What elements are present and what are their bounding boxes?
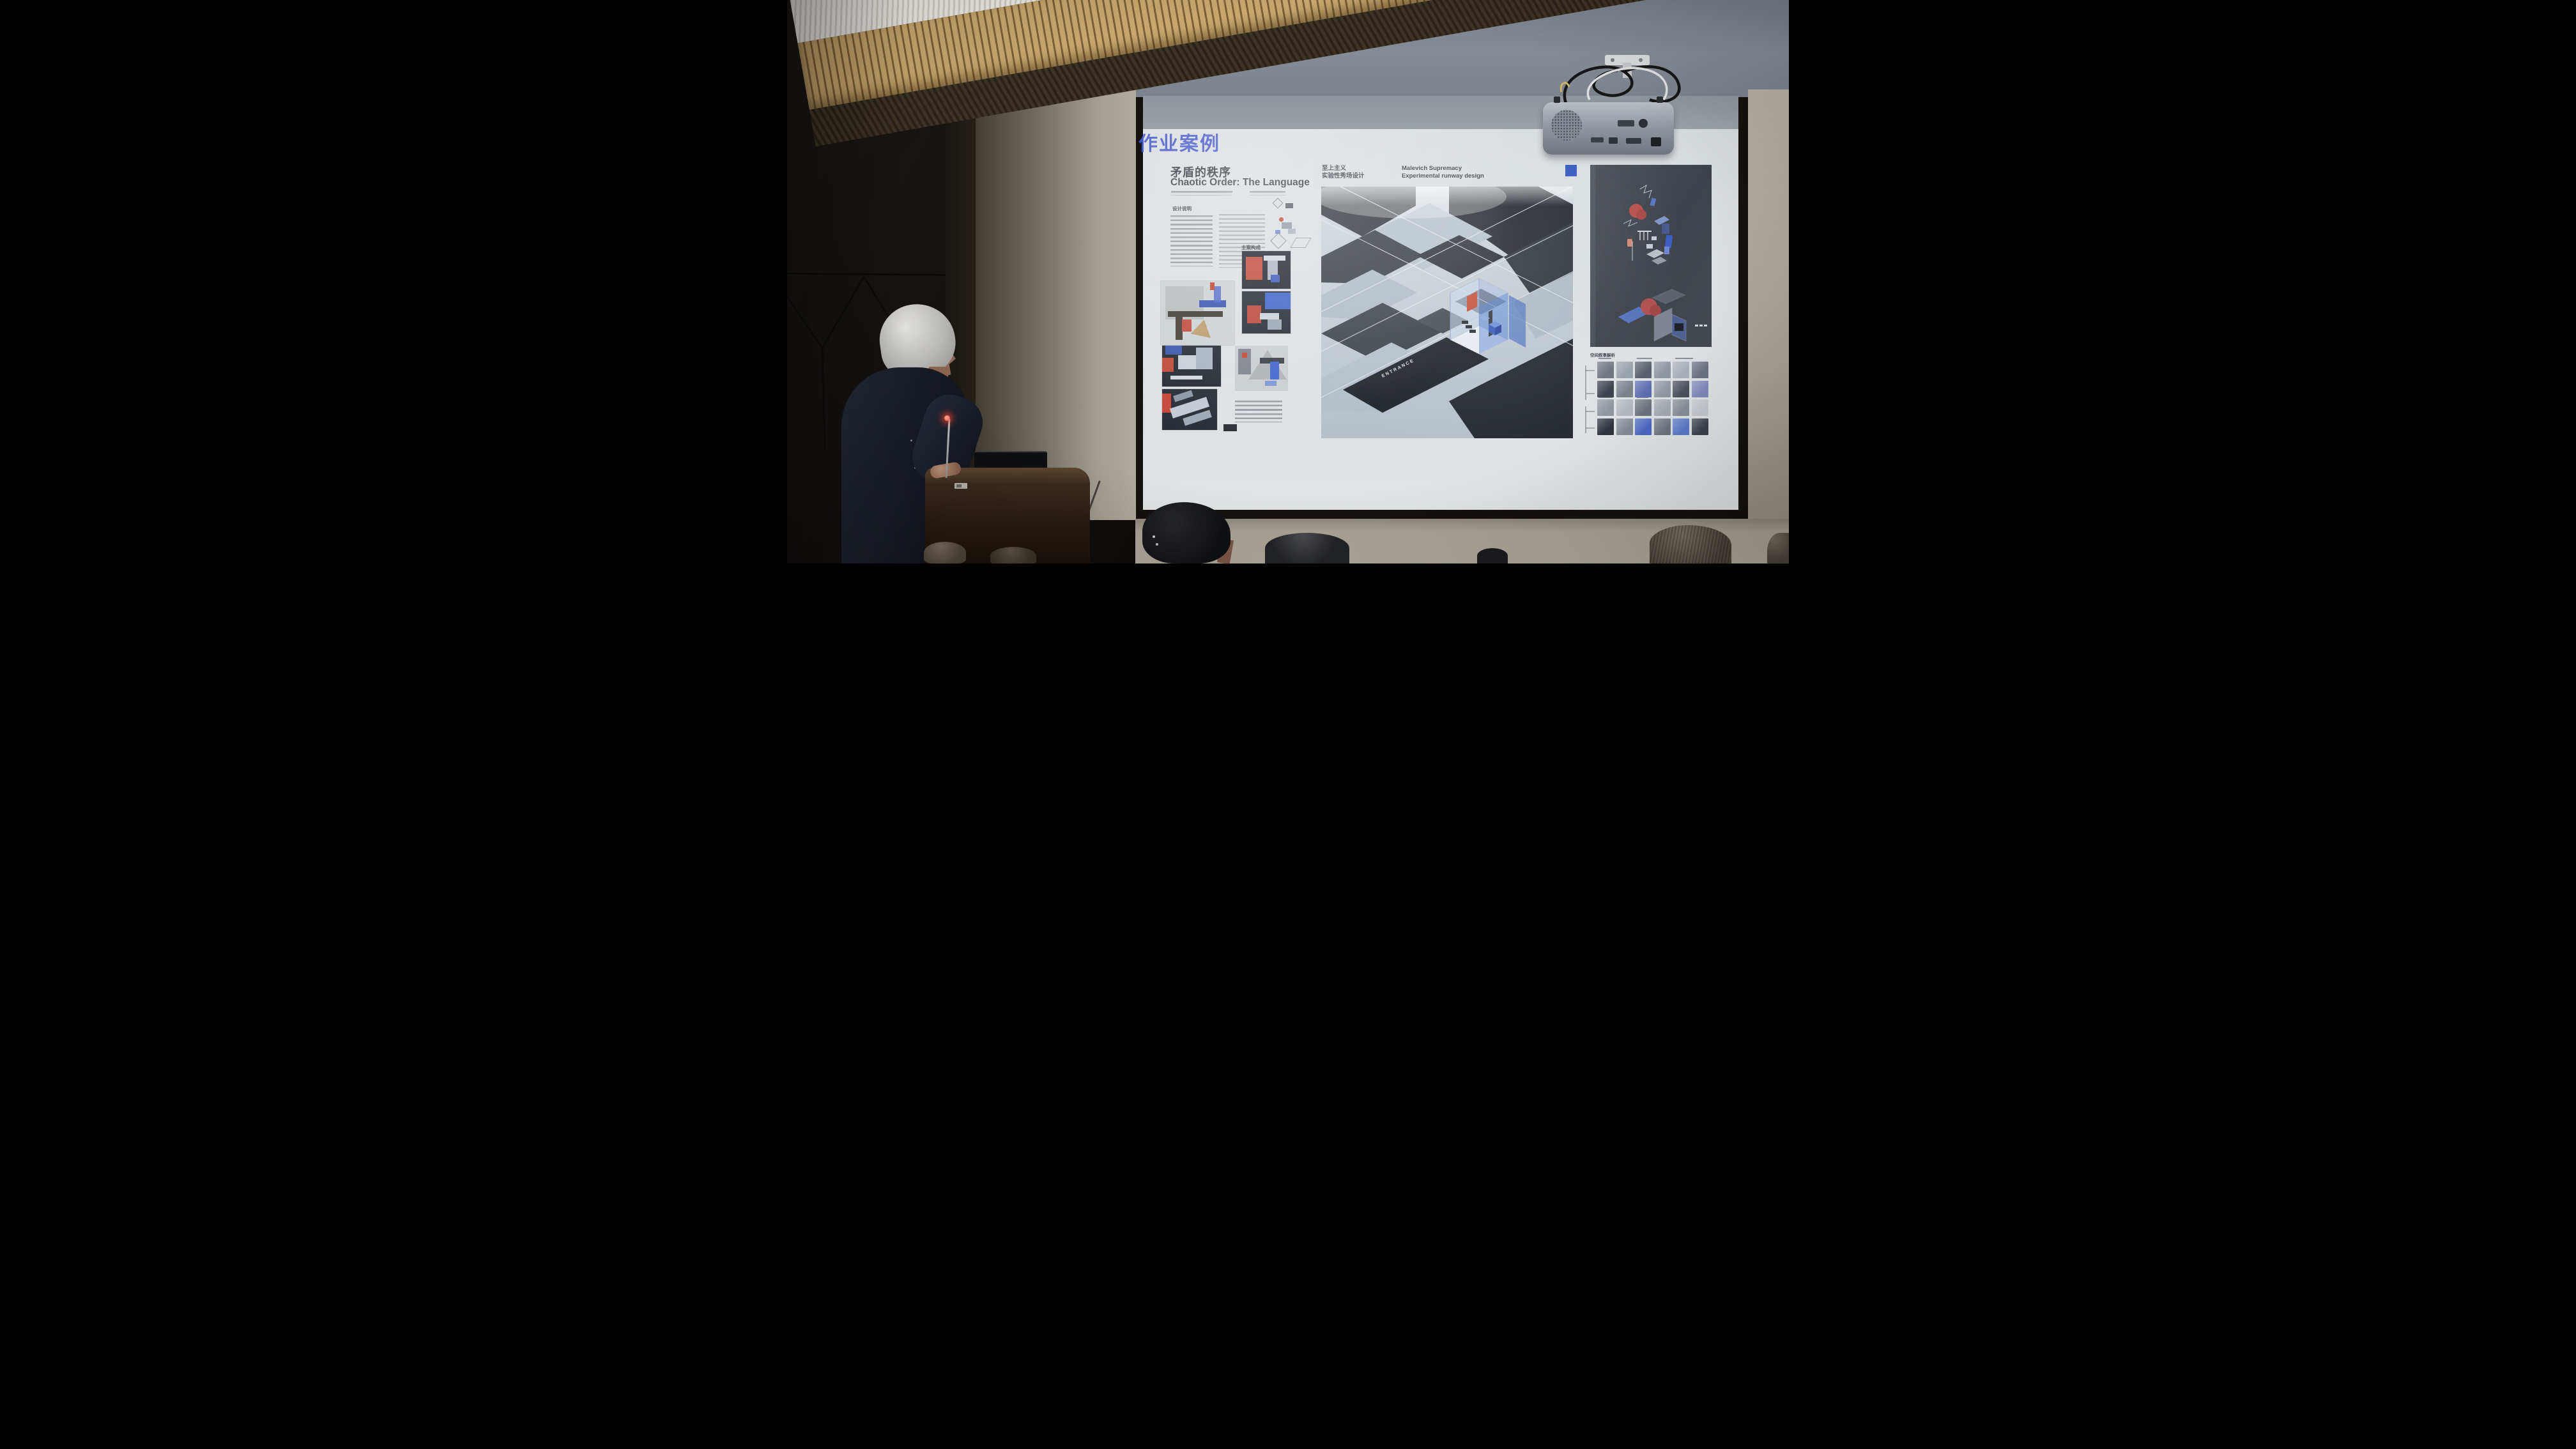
collage-shape: [1210, 282, 1215, 290]
collage-panel-2: [1242, 291, 1291, 333]
audience-head: [924, 542, 966, 563]
grid-column-label-blur: [1675, 358, 1693, 359]
analysis-thumbnail: [1597, 362, 1614, 378]
analysis-thumbnail: [1616, 381, 1633, 397]
beige-wall-right: [1748, 89, 1789, 563]
analysis-label: 空间叙事解析: [1590, 351, 1615, 358]
grid-column-label-blur: [1637, 358, 1652, 359]
analysis-thumbnail: [1673, 418, 1689, 435]
analysis-thumbnail: [1654, 362, 1671, 378]
diagram-shape: [1270, 233, 1286, 249]
analysis-thumbnail: [1654, 381, 1671, 397]
collage-shape: [1168, 311, 1223, 317]
collage-panel-5: [1162, 389, 1217, 430]
collage-shape: [1247, 305, 1261, 323]
projector-vga-port: [1618, 120, 1634, 126]
projector-speaker-grille: [1551, 110, 1582, 141]
analysis-thumbnail: [1654, 399, 1671, 416]
collage-panel-3: [1161, 281, 1234, 345]
diagram-shape: [1282, 222, 1292, 229]
diagram-shape: [1279, 217, 1284, 222]
credits-designer-blur: [1171, 191, 1232, 195]
project-title-en: Chaotic Order: The Language: [1170, 177, 1310, 188]
projector-cables: [1528, 55, 1694, 109]
projector-slot: [1591, 137, 1604, 142]
collage-shape: [1268, 319, 1282, 330]
collage-shape: [1170, 376, 1202, 379]
microphone-light: [944, 415, 950, 421]
analysis-thumbnail: [1635, 381, 1652, 397]
cap-logo-dot: [1156, 543, 1158, 546]
design-notes-label: 设计说明: [1172, 205, 1192, 212]
audience-head: [990, 547, 1036, 563]
analysis-thumbnail: [1597, 381, 1614, 397]
diagram-shape: [1290, 238, 1311, 248]
podium-plaque-mark: [956, 484, 962, 487]
collage-shape: [1196, 348, 1213, 369]
collage-shape: [1199, 300, 1226, 307]
analysis-thumbnail: [1692, 399, 1708, 416]
analysis-thumbnail: [1635, 399, 1652, 416]
hair-texture: [1650, 525, 1731, 563]
collage-shape: [1173, 390, 1193, 402]
runway-subtitle-en: Malevich Supremacy Experimental runway d…: [1402, 165, 1484, 180]
projector-round-port: [1639, 119, 1648, 128]
collage-shape: [1165, 346, 1182, 355]
audience-head: [1477, 548, 1508, 563]
collage-shape: [1191, 318, 1215, 338]
analysis-thumbnail-grid: [1597, 362, 1708, 435]
projector-hdmi-port: [1626, 138, 1641, 144]
analysis-thumbnail: [1692, 362, 1708, 378]
collage-shape: [1162, 358, 1174, 372]
collage-shape: [1242, 353, 1247, 358]
runway-subtitle-zh-line2: 实验性秀场设计: [1322, 172, 1365, 180]
collage-shape: [1260, 313, 1279, 319]
analysis-tree-diagram: [1581, 362, 1596, 438]
projector: [1543, 102, 1674, 155]
slide-section-title: 作业案例: [1138, 128, 1220, 156]
collage-panel-4: [1162, 346, 1221, 387]
analysis-thumbnail: [1616, 399, 1633, 416]
analysis-thumbnail: [1673, 381, 1689, 397]
blue-square-marker: [1565, 165, 1577, 176]
diagram-shape: [1285, 203, 1293, 208]
main-isometric-render: ENTRANCE: [1321, 187, 1573, 438]
cap-logo-dot: [1153, 535, 1155, 538]
audience-head: [1265, 533, 1349, 563]
shirt-button: [910, 440, 912, 441]
collage-shape: [1264, 256, 1285, 261]
collage-shape: [1270, 362, 1279, 379]
projector-foot: [1657, 96, 1663, 103]
collage-shape: [1214, 286, 1221, 302]
concept-panel: [1590, 165, 1712, 347]
collage-panel-6: [1236, 346, 1287, 390]
lecture-hall-photo: 作业案例 矛盾的秩序 Chaotic Order: The Language 至…: [787, 0, 1789, 563]
analysis-thumbnail: [1692, 381, 1708, 397]
audience-head-cap: [1142, 502, 1230, 563]
runway-subtitle-zh: 至上主义 实验性秀场设计: [1322, 165, 1365, 180]
analysis-thumbnail: [1616, 362, 1633, 378]
paragraph-zh-blur: [1170, 215, 1213, 266]
analysis-thumbnail: [1597, 399, 1614, 416]
projector-lan-port: [1651, 137, 1661, 146]
collage-shape: [1265, 381, 1276, 386]
grid-column-label-blur: [1598, 358, 1611, 359]
mini-exploded-diagram: [1268, 198, 1310, 253]
podium-plaque: [954, 483, 967, 489]
diagram-shape: [1273, 198, 1284, 209]
diagram-shape: [1288, 229, 1296, 234]
analysis-thumbnail: [1597, 418, 1614, 435]
collage-panel-1: [1242, 251, 1291, 289]
analysis-thumbnail: [1635, 362, 1652, 378]
body-paragraph-blur: [1235, 401, 1282, 422]
collage-shape: [1246, 257, 1262, 280]
audience-head: [1650, 525, 1731, 563]
projector-foot: [1554, 96, 1560, 103]
analysis-thumbnail: [1616, 418, 1633, 435]
runway-subtitle-zh-line1: 至上主义: [1322, 165, 1365, 172]
runway-subtitle-en-line1: Malevich Supremacy: [1402, 165, 1484, 172]
composition-label: 主案构成: [1241, 244, 1261, 251]
analysis-thumbnail: [1673, 399, 1689, 416]
small-dark-swatch: [1223, 424, 1237, 431]
collage-shape: [1265, 293, 1291, 309]
analysis-thumbnail: [1654, 418, 1671, 435]
analysis-thumbnail: [1635, 418, 1652, 435]
credits-tutor-blur: [1250, 191, 1285, 195]
runway-subtitle-en-line2: Experimental runway design: [1402, 172, 1484, 180]
collage-shape: [1182, 319, 1192, 332]
collage-shape: [1271, 275, 1280, 282]
analysis-thumbnail: [1673, 362, 1689, 378]
analysis-thumbnail: [1692, 418, 1708, 435]
projector-usb-port: [1609, 137, 1618, 144]
collage-shape: [1248, 350, 1287, 379]
